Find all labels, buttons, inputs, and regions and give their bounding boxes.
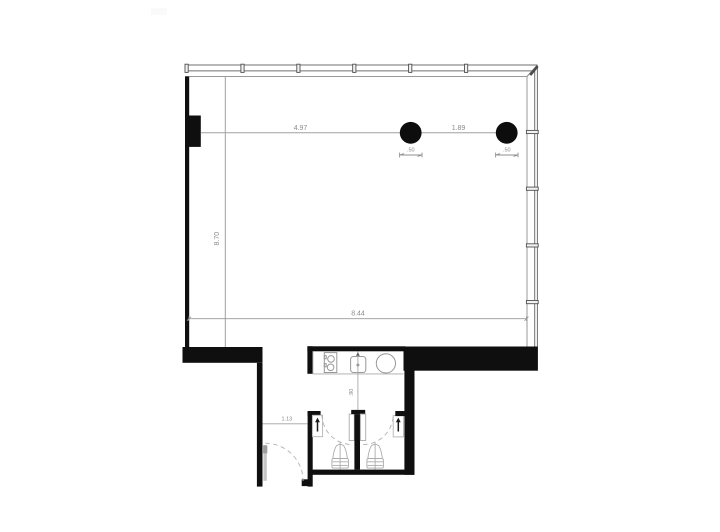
svg-text:8.70: 8.70 — [214, 232, 221, 246]
svg-text:8.44: 8.44 — [351, 311, 365, 318]
svg-text:1.89: 1.89 — [452, 125, 466, 132]
svg-text:.50: .50 — [407, 147, 415, 153]
svg-text:.50: .50 — [503, 147, 511, 153]
svg-text:.90: .90 — [349, 389, 355, 397]
svg-text:1.13: 1.13 — [282, 417, 293, 423]
svg-text:4.97: 4.97 — [294, 125, 308, 132]
